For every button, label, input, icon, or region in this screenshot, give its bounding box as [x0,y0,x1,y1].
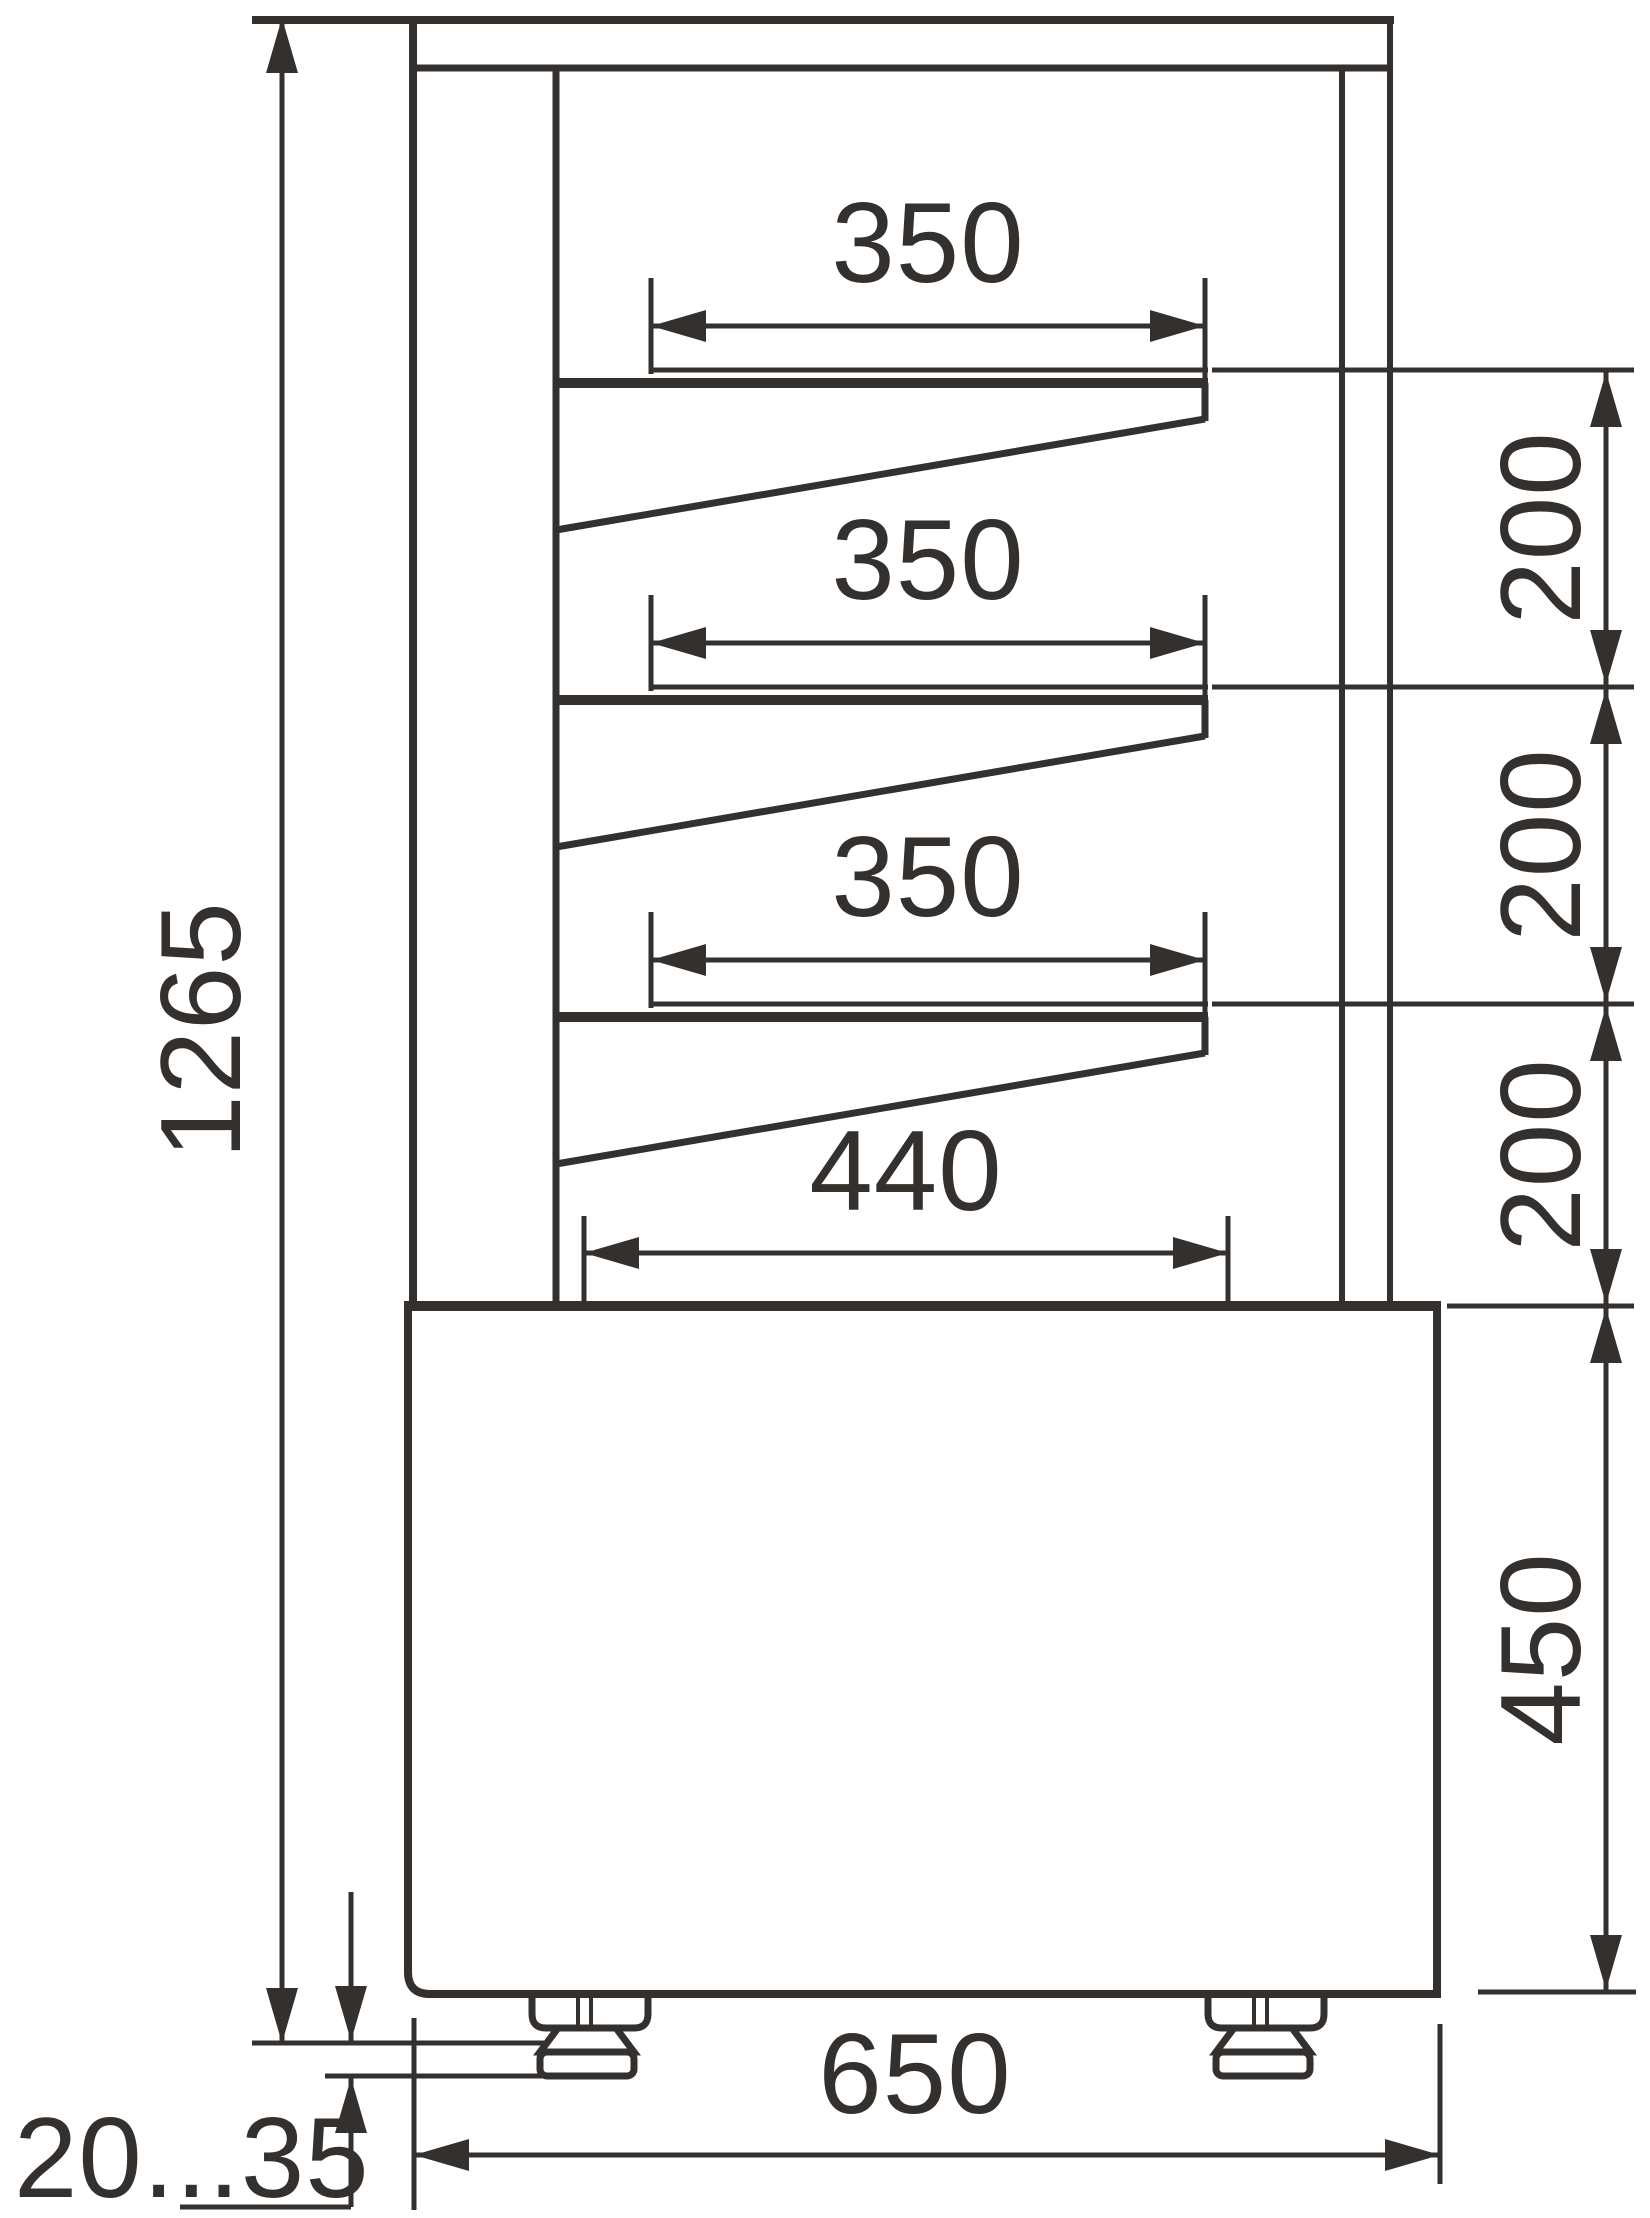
foot-right-cone [1216,2028,1310,2052]
arrowhead-down-icon [1590,1249,1622,1304]
dim-label-foot-range: 20...35 [14,2095,370,2218]
arrowhead-left-icon [584,1237,639,1269]
arrowhead-left-icon [651,627,706,659]
dim-label-shelf-depth-1: 350 [831,180,1024,307]
dimension-bottom-shelf-depth: 440 [584,1108,1228,1304]
arrowhead-up-icon [266,18,298,73]
arrowhead-left-icon [414,2139,469,2171]
adjustable-foot-left [532,1994,648,2076]
arrowhead-down-icon [1590,630,1622,685]
dim-label-shelf-depth-2: 350 [831,497,1024,624]
arrowhead-down-icon [266,1988,298,2043]
arrowhead-right-icon [1385,2139,1440,2171]
dimension-base-height: 450 [1478,1308,1636,1992]
arrowhead-up-icon [1590,1308,1622,1363]
arrowhead-down-icon [1590,1935,1622,1990]
arrowhead-up-icon [1590,372,1622,427]
arrowhead-left-icon [651,944,706,976]
dim-label-overall-height: 1265 [138,901,265,1159]
base-cabinet [404,1306,1441,1994]
arrowhead-right-icon [1150,627,1205,659]
adjustable-foot-right [1208,1994,1324,2076]
arrowhead-right-icon [1150,310,1205,342]
dim-label-bottom-shelf-depth: 440 [809,1108,1002,1235]
arrowhead-down-icon [1590,947,1622,1002]
dimension-overall-height: 1265 [138,18,546,2043]
arrowhead-up-icon [1590,689,1622,744]
dim-label-shelf-spacing-3: 200 [1478,1058,1605,1251]
arrowhead-left-icon [651,310,706,342]
dimension-drawing: 350 350 350 440 200 200 [0,0,1650,2218]
arrowhead-right-icon [1150,944,1205,976]
arrowhead-down-icon [335,1986,367,2041]
dim-label-shelf-depth-3: 350 [831,814,1024,941]
dim-label-base-height: 450 [1478,1552,1605,1745]
foot-right-pad [1216,2052,1310,2076]
arrowhead-right-icon [1173,1237,1228,1269]
dimension-shelf-spacings: 200 200 200 [1212,370,1634,1990]
arrowhead-up-icon [1590,1006,1622,1061]
base-cabinet-body [408,1306,1437,1994]
dim-label-base-depth: 650 [818,2011,1011,2138]
dim-label-shelf-spacing-1: 200 [1478,431,1605,624]
dim-label-shelf-spacing-2: 200 [1478,748,1605,941]
foot-left-cone [540,2028,634,2052]
drawing-canvas: 350 350 350 440 200 200 [0,0,1650,2218]
foot-left-pad [540,2052,634,2076]
